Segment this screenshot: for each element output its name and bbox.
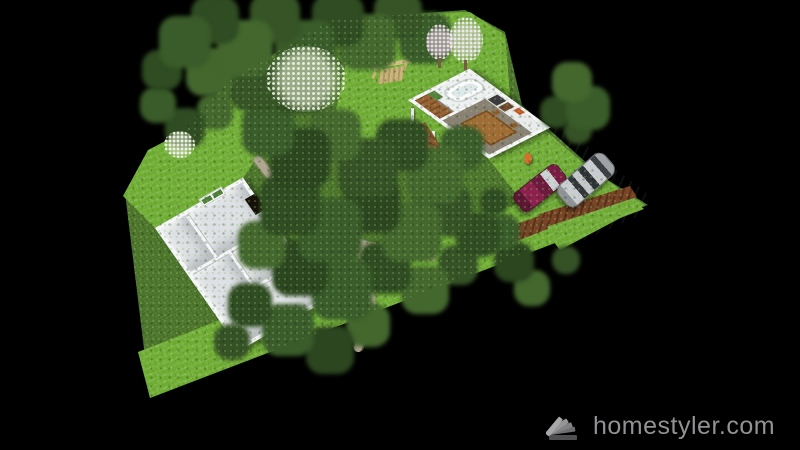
homestyler-watermark[interactable]: homestyler.com xyxy=(546,408,794,444)
tree-trunk xyxy=(464,60,467,70)
homestyler-logo-icon xyxy=(546,410,584,442)
tree-trunk xyxy=(438,58,441,68)
orange-figure xyxy=(524,153,532,164)
watermark-text: homestyler.com xyxy=(593,412,775,441)
flowering-shrub-white xyxy=(164,131,195,158)
flowering-tree-white xyxy=(266,46,346,112)
render-canvas: homestyler.com xyxy=(0,0,800,450)
flowering-tree-pink xyxy=(449,17,483,63)
gate-post xyxy=(411,108,414,124)
